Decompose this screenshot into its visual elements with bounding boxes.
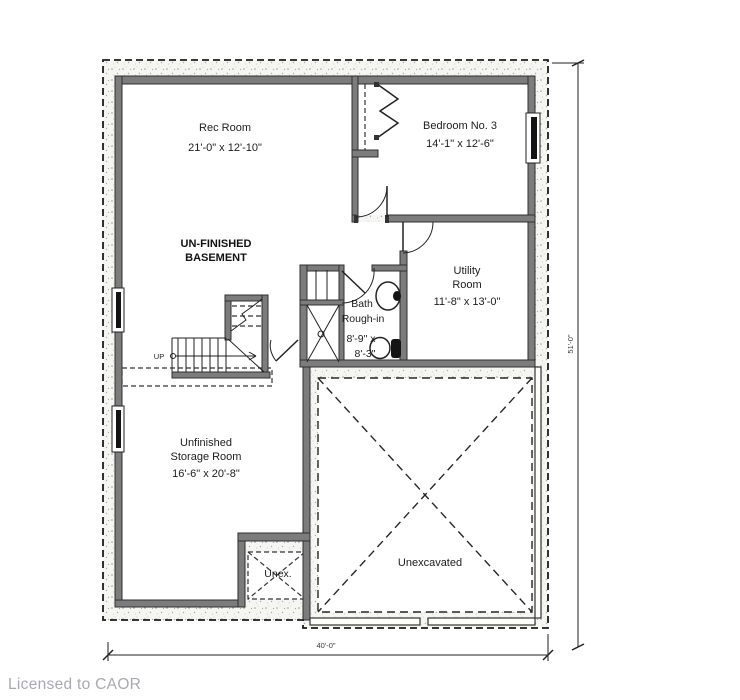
- room-interiors: [122, 84, 532, 612]
- bedroom3-dims: 14'-1" x 12'-6": [426, 138, 494, 150]
- rec-room-dims: 21'-0" x 12'-10": [188, 142, 262, 154]
- bath-label-1: Bath: [351, 298, 373, 310]
- utility-label-2: Room: [452, 279, 481, 291]
- basement-floor-plan-drawing: UP Rec Room 21'-0" x 12'-10" UN-FINISHED…: [0, 0, 740, 700]
- width-dim-text: 40'-0": [316, 641, 335, 650]
- license-text: Licensed to CAOR: [8, 676, 141, 694]
- stairs-up-label: UP: [154, 352, 164, 361]
- overall-height-dimension: 51'-0": [552, 60, 584, 650]
- bath-dims-2: 8'-3": [355, 348, 376, 360]
- storage-label-2: Storage Room: [171, 451, 242, 463]
- left-window-1: [112, 288, 124, 332]
- rec-room-label: Rec Room: [199, 122, 251, 134]
- basement-label-2: BASEMENT: [185, 252, 247, 264]
- overall-width-dimension: 40'-0": [103, 634, 553, 661]
- utility-dims: 11'-8" x 13'-0": [434, 296, 501, 308]
- bedroom-window: [526, 113, 540, 163]
- storage-dims: 16'-6" x 20'-8": [172, 468, 240, 480]
- unex-label: Unex.: [264, 568, 291, 580]
- utility-label-1: Utility: [454, 265, 481, 277]
- bath-dims-1: 8'-9" x: [346, 333, 376, 345]
- floor-plan-page: UP Rec Room 21'-0" x 12'-10" UN-FINISHED…: [0, 0, 740, 700]
- storage-label-1: Unfinished: [180, 437, 232, 449]
- bath-label-2: Rough-in: [342, 313, 385, 325]
- left-window-2: [112, 406, 124, 452]
- unexcavated-label: Unexcavated: [398, 557, 462, 569]
- basement-label-1: UN-FINISHED: [181, 238, 252, 250]
- sink-rough-in: [376, 282, 401, 310]
- height-dim-text: 51'-0": [566, 334, 575, 353]
- bedroom3-label: Bedroom No. 3: [423, 120, 497, 132]
